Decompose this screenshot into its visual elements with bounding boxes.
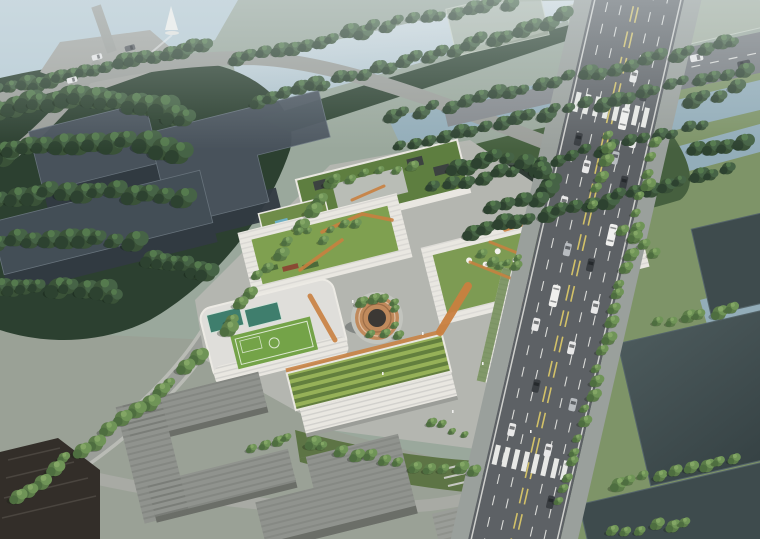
- haze-overlay: [0, 0, 760, 150]
- aerial-rendering: [0, 0, 760, 539]
- scene-canvas: [0, 0, 760, 539]
- pavilion-core: [368, 309, 386, 327]
